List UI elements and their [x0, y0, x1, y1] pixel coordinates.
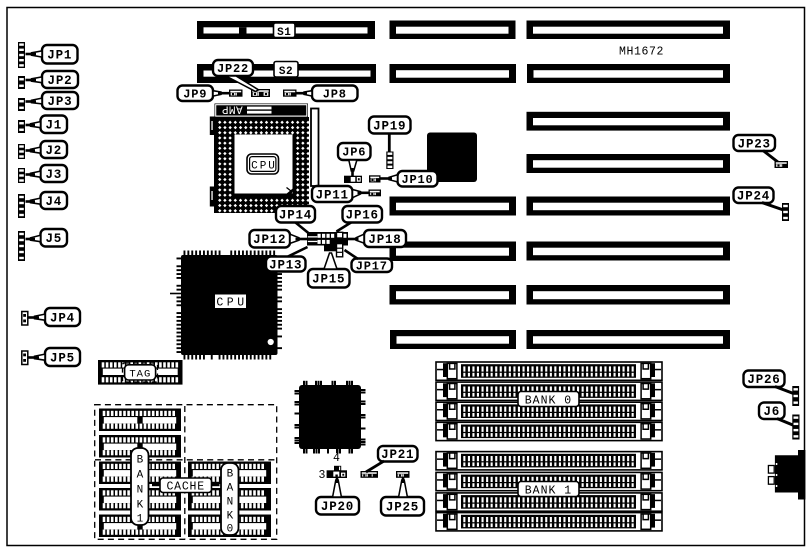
- svg-text:CPU: CPU: [251, 160, 277, 172]
- svg-text:CACHE: CACHE: [166, 481, 205, 494]
- svg-text:N: N: [137, 485, 144, 497]
- svg-text:AMP: AMP: [221, 103, 242, 115]
- svg-text:N: N: [227, 497, 234, 509]
- svg-text:B: B: [137, 455, 144, 467]
- svg-text:1: 1: [137, 514, 144, 526]
- svg-text:JP14: JP14: [279, 209, 312, 223]
- svg-text:K: K: [137, 500, 144, 512]
- svg-text:JP22: JP22: [217, 62, 249, 76]
- svg-text:J2: J2: [45, 144, 62, 158]
- svg-text:J4: J4: [45, 195, 62, 209]
- svg-text:K: K: [227, 511, 234, 523]
- svg-text:0: 0: [227, 524, 234, 536]
- svg-text:JP4: JP4: [50, 311, 75, 325]
- svg-text:CPU: CPU: [216, 296, 247, 309]
- svg-text:JP17: JP17: [356, 259, 388, 273]
- svg-text:JP20: JP20: [321, 500, 354, 514]
- svg-text:A: A: [227, 483, 234, 495]
- svg-text:JP12: JP12: [253, 233, 286, 247]
- svg-text:JP2: JP2: [48, 74, 73, 88]
- svg-text:JP13: JP13: [269, 258, 302, 272]
- svg-text:A: A: [137, 470, 144, 482]
- svg-text:JP25: JP25: [386, 501, 419, 515]
- svg-text:TAG: TAG: [129, 368, 151, 380]
- svg-text:JP23: JP23: [738, 137, 771, 151]
- svg-text:B: B: [227, 469, 234, 481]
- svg-text:JP1: JP1: [47, 49, 72, 63]
- svg-text:JP6: JP6: [342, 146, 366, 160]
- svg-text:3: 3: [319, 469, 326, 482]
- svg-text:J3: J3: [45, 168, 62, 182]
- svg-text:BANK 0: BANK 0: [525, 394, 572, 407]
- svg-text:JP3: JP3: [48, 95, 73, 109]
- svg-text:JP26: JP26: [747, 373, 780, 387]
- svg-text:JP16: JP16: [346, 209, 379, 223]
- svg-text:JP5: JP5: [50, 351, 75, 365]
- svg-text:4: 4: [333, 452, 340, 465]
- svg-text:JP11: JP11: [316, 188, 349, 202]
- svg-text:JP19: JP19: [373, 119, 406, 133]
- svg-text:J6: J6: [763, 405, 780, 419]
- svg-text:JP21: JP21: [381, 448, 414, 462]
- svg-text:JP9: JP9: [183, 87, 207, 101]
- svg-text:S1: S1: [277, 27, 291, 39]
- svg-text:BANK 1: BANK 1: [525, 484, 572, 497]
- svg-text:JP24: JP24: [737, 190, 770, 204]
- svg-text:S2: S2: [279, 66, 293, 78]
- svg-text:J1: J1: [45, 119, 62, 133]
- svg-text:JP18: JP18: [368, 233, 401, 247]
- svg-text:JP10: JP10: [401, 173, 433, 187]
- svg-text:JP8: JP8: [323, 87, 347, 101]
- svg-text:J5: J5: [45, 232, 62, 246]
- svg-text:JP15: JP15: [312, 273, 345, 287]
- svg-text:MH1672: MH1672: [619, 46, 664, 59]
